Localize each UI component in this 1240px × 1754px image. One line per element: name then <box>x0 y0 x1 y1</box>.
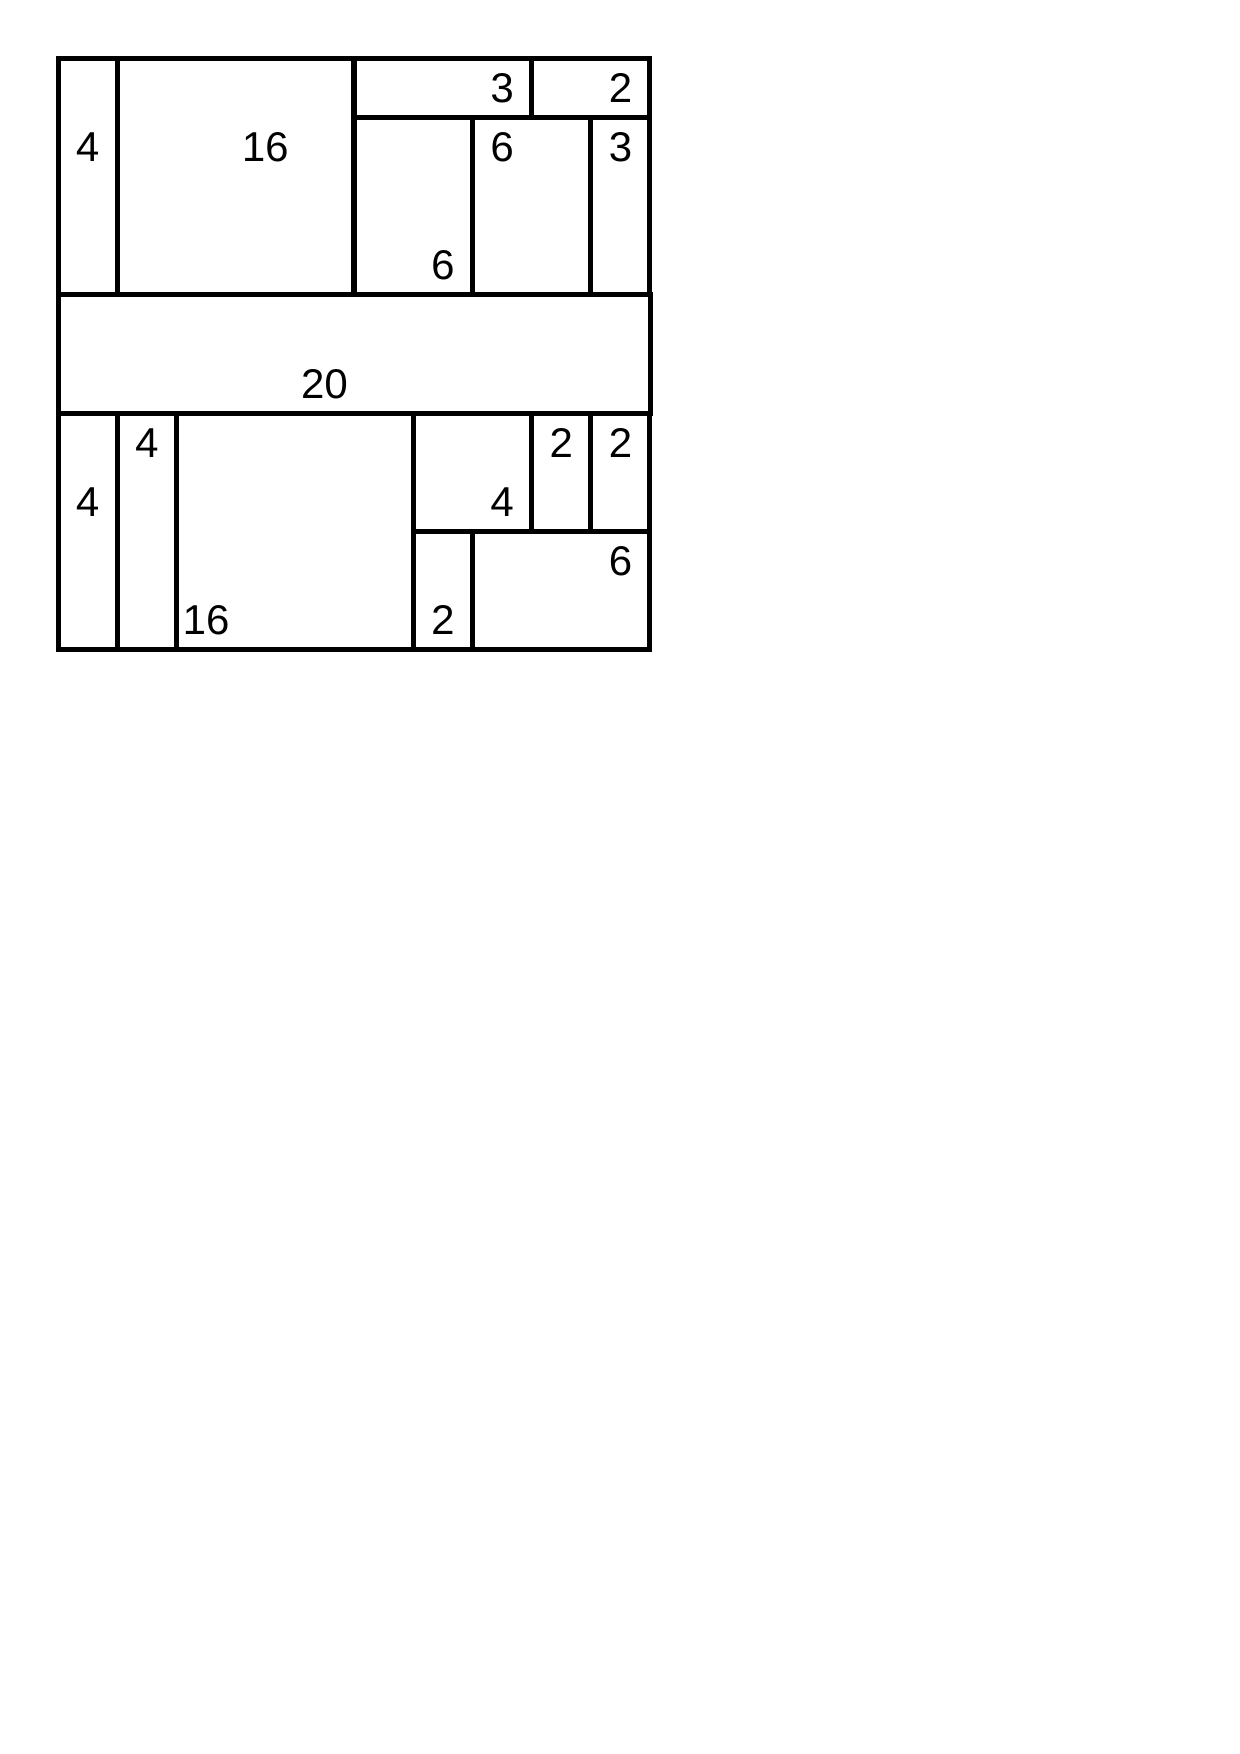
area-label: 2 <box>431 599 454 641</box>
area-label: 4 <box>76 481 99 523</box>
area-label: 2 <box>550 422 573 464</box>
area-label: 2 <box>609 67 632 109</box>
shikaku-puzzle: 4163266320441642226 <box>0 0 1240 1754</box>
puzzle-rectangle <box>56 56 120 298</box>
puzzle-rectangle <box>115 56 357 298</box>
area-label: 4 <box>76 126 99 168</box>
area-label: 3 <box>609 126 632 168</box>
area-label: 20 <box>301 363 348 405</box>
area-label: 6 <box>490 126 513 168</box>
document-page: 4163266320441642226 <box>0 0 1240 1754</box>
puzzle-rectangle <box>411 411 534 534</box>
puzzle-rectangle <box>56 411 120 653</box>
area-label: 16 <box>183 599 230 641</box>
puzzle-rectangle <box>56 292 653 415</box>
puzzle-rectangle <box>352 115 475 298</box>
area-label: 4 <box>490 481 513 523</box>
puzzle-rectangle <box>470 115 593 298</box>
area-label: 16 <box>242 126 289 168</box>
area-label: 6 <box>431 244 454 286</box>
area-label: 4 <box>135 422 158 464</box>
area-label: 6 <box>609 540 632 582</box>
area-label: 2 <box>609 422 632 464</box>
puzzle-rectangle <box>529 56 652 120</box>
area-label: 3 <box>490 67 513 109</box>
